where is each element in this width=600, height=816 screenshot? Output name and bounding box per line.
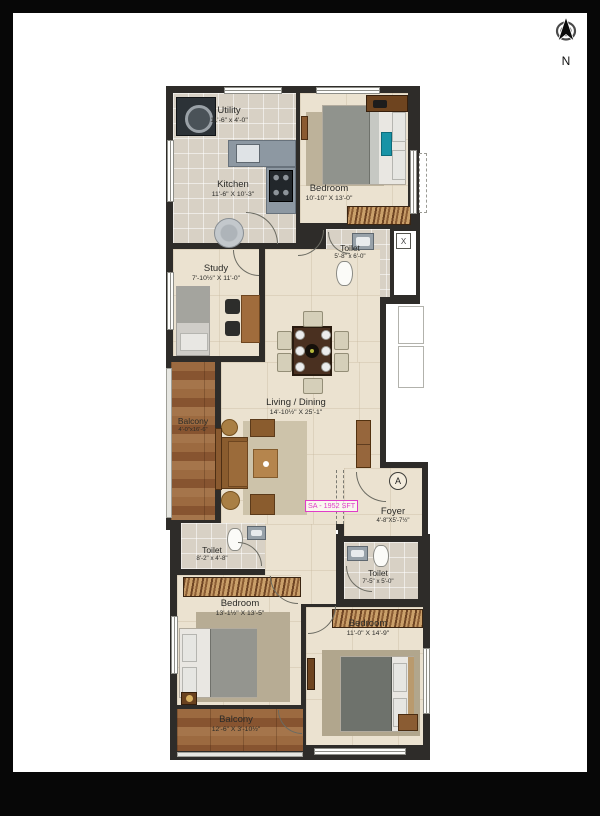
washer-drum-icon <box>185 105 213 133</box>
north-arrow-icon <box>551 16 581 48</box>
nightstand <box>398 714 418 731</box>
bedroom-left-bed <box>179 628 257 698</box>
plate-icon <box>295 330 305 340</box>
frame-right <box>587 0 600 816</box>
bedroom-top-wardrobe <box>347 206 411 225</box>
side-table <box>221 419 238 436</box>
kitchen-round-table <box>214 218 244 248</box>
balcony-rail <box>177 752 303 757</box>
balcony-left-label: Balcony 4'-0"x16'-6" <box>178 417 208 433</box>
bedroom-right-label: Bedroom 11'-0" X 14'-9" <box>347 619 389 637</box>
study-chair <box>225 321 240 336</box>
entry-marker-a: A <box>389 472 407 490</box>
tv-unit <box>307 658 315 690</box>
room-dims: 11'-6" X 10'-3" <box>212 191 254 199</box>
entry-marker-letter: A <box>395 476 401 486</box>
daybed-pillow <box>180 333 208 351</box>
room-dims: 10'-10" X 13'-0" <box>306 195 353 203</box>
bedroom-top-dresser <box>366 95 408 112</box>
window <box>423 648 430 714</box>
dining-chair <box>334 331 349 350</box>
room-name: Foyer <box>377 507 410 518</box>
balcony-rail <box>166 368 172 518</box>
toilet-left-label: Toilet 8'-2" x 4'-8" <box>196 546 227 562</box>
frame-left <box>0 0 13 816</box>
window <box>167 140 174 202</box>
balcony-slider-door <box>215 428 222 490</box>
shaft-mark: X <box>401 237 406 246</box>
room-dims: 11'-6" x 4'-0" <box>210 117 248 125</box>
sofa <box>219 437 248 489</box>
room-dims: 7'-5" x 5'-0" <box>362 579 393 586</box>
room-name: Living / Dining <box>266 398 326 409</box>
study-label: Study 7'-10½" X 11'-0" <box>192 264 240 282</box>
foyer-label: Foyer 4'-8"X5'-7½" <box>377 507 410 524</box>
room-name: Bedroom <box>347 619 389 630</box>
room-dims: 8'-2" x 4'-8" <box>196 556 227 563</box>
dresser-items <box>373 100 387 108</box>
frame-bottom <box>0 772 600 816</box>
study-chair <box>225 299 240 314</box>
room-dims: 13'-1½" X 13'-5" <box>216 610 265 618</box>
dining-chair <box>277 353 292 372</box>
room-name: Kitchen <box>212 180 254 191</box>
toilet-right-basin <box>347 546 368 561</box>
daybed-blanket <box>177 287 209 323</box>
room-dims: 14'-10½" X 25'-1" <box>266 409 326 417</box>
window <box>171 616 178 674</box>
plate-icon <box>321 362 331 372</box>
window <box>167 272 174 330</box>
study-daybed <box>176 286 210 356</box>
dining-chair <box>303 311 323 327</box>
bed-cushion-teal <box>381 132 392 156</box>
floor-plan-page: X <box>0 0 600 816</box>
dining-chair <box>303 378 323 394</box>
frame-top <box>0 0 600 13</box>
window <box>410 150 417 214</box>
bedroom-left-label: Bedroom 13'-1½" X 13'-5" <box>216 599 265 617</box>
saleable-area-tag: SA - 1952 SFT <box>305 500 358 512</box>
sofa-cushions <box>228 441 248 487</box>
stair-outline <box>398 346 424 388</box>
room-name: Bedroom <box>216 599 265 610</box>
plate-icon <box>321 346 331 356</box>
bedroom-top-label: Bedroom 10'-10" X 13'-0" <box>306 184 353 202</box>
north-indicator: N <box>544 16 588 68</box>
bed-sheet <box>370 106 379 184</box>
room-name: Balcony <box>212 715 261 726</box>
armchair <box>250 494 275 515</box>
bedroom-top-bed <box>322 105 406 185</box>
living-dining-label: Living / Dining 14'-10½" X 25'-1" <box>266 398 326 416</box>
window <box>224 87 282 94</box>
bed-pillow <box>392 112 406 142</box>
window-projection <box>419 153 427 213</box>
coffee-table <box>253 449 278 478</box>
toilet-top-wc <box>336 261 353 286</box>
room-name: Utility <box>210 106 248 117</box>
room-name: Bedroom <box>306 184 353 195</box>
bed-blanket <box>210 629 257 697</box>
north-label: N <box>544 54 588 68</box>
bed-pillow <box>392 150 406 180</box>
crockery-cabinet <box>356 420 371 468</box>
dining-chair <box>277 331 292 350</box>
room-name: Study <box>192 264 240 275</box>
bed-blanket <box>323 106 370 184</box>
plate-icon <box>321 330 331 340</box>
window <box>314 748 406 755</box>
bed-pillow <box>182 634 197 662</box>
dining-chair <box>334 353 349 372</box>
bed-pillow <box>393 663 407 692</box>
bed-pillow <box>182 667 197 695</box>
lamp-icon <box>186 695 193 702</box>
shaft-louver: X <box>396 233 411 249</box>
armchair <box>250 419 275 437</box>
toilet-left-basin <box>247 526 266 540</box>
dining-centerpiece <box>310 349 314 353</box>
nightstand <box>181 692 197 705</box>
plate-icon <box>295 346 305 356</box>
kitchen-label: Kitchen 11'-6" X 10'-3" <box>212 180 254 198</box>
room-dims: 11'-0" X 14'-9" <box>347 630 389 638</box>
room-name: Balcony <box>178 417 208 427</box>
room-dims: 4'-8"X5'-7½" <box>377 518 410 525</box>
foyer-divider-dashed <box>336 470 344 524</box>
room-dims: 4'-0"x16'-6" <box>178 427 208 433</box>
toilet-right-label: Toilet 7'-5" x 5'-0" <box>362 569 393 585</box>
room-dims: 5'-8" x 6'-0" <box>334 254 365 261</box>
toilet-right-wc <box>373 545 389 567</box>
side-table <box>221 491 240 510</box>
flower-vase-icon <box>263 461 269 467</box>
window <box>316 87 380 94</box>
room-dims: 12'-6" X 3'-10½" <box>212 726 261 734</box>
bedroom-top-shelf <box>301 116 308 140</box>
kitchen-hob <box>269 170 293 202</box>
bed-blanket <box>341 657 392 731</box>
toilet-top-label: Toilet 5'-8" x 6'-0" <box>334 244 365 260</box>
lobby-outline <box>398 306 424 344</box>
study-desk <box>241 295 260 343</box>
plate-icon <box>295 362 305 372</box>
balcony-left-floor <box>171 362 215 520</box>
balcony-bottom-label: Balcony 12'-6" X 3'-10½" <box>212 715 261 733</box>
room-dims: 7'-10½" X 11'-0" <box>192 275 240 283</box>
utility-label: Utility 11'-6" x 4'-0" <box>210 106 248 124</box>
kitchen-sink <box>236 144 260 163</box>
